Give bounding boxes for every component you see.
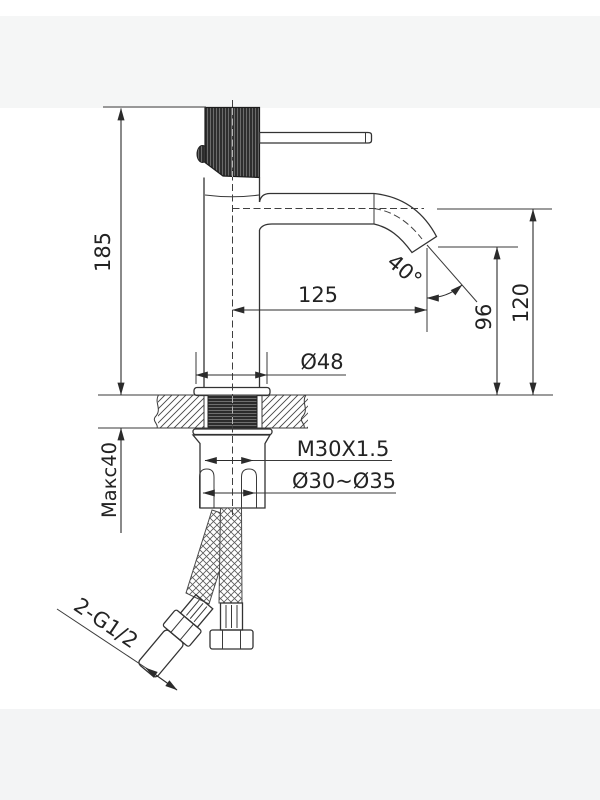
spout — [260, 194, 437, 253]
dim-max-thickness-label: Макс40 — [98, 442, 121, 518]
dim-mounting-hole-label: Ø30~Ø35 — [292, 469, 396, 493]
nut-prong-left — [200, 469, 215, 508]
countertop-break-left — [154, 395, 158, 428]
dim-outlet-height-label: 96 — [472, 304, 496, 331]
drawing-svg: 185 Макс40 125 40° 96 120 Ø48 M30X1.5 Ø3… — [0, 0, 600, 800]
background-band-top — [0, 16, 600, 108]
dim-total-height-label: 185 — [91, 232, 115, 272]
handle-lever — [260, 133, 372, 144]
thread-end-left — [137, 629, 184, 679]
nut-prong-right — [242, 469, 257, 508]
dim-shank-thread-label: M30X1.5 — [297, 437, 390, 461]
background-band-bottom — [0, 709, 600, 800]
mounting-nut — [193, 435, 270, 508]
dim-body-diameter-label: Ø48 — [300, 350, 343, 374]
faucet-technical-drawing: 185 Макс40 125 40° 96 120 Ø48 M30X1.5 Ø3… — [0, 0, 600, 800]
dim-spout-angle-label: 40° — [383, 249, 427, 291]
supply-hose-right — [219, 508, 242, 603]
hex-nut-right — [210, 630, 253, 649]
hose-fitting-right — [210, 603, 253, 649]
dim-hose-connections-label: 2-G1/2 — [69, 593, 142, 653]
countertop-hatch-left — [158, 395, 204, 428]
outlet-direction-leader — [427, 245, 477, 302]
countertop-hatch-right — [262, 395, 308, 428]
spout-bend-centerline — [374, 209, 422, 240]
dim-spout-height-label: 120 — [509, 283, 533, 323]
dim-arc-spout-angle — [427, 285, 462, 298]
dim-spout-reach-label: 125 — [298, 283, 338, 307]
